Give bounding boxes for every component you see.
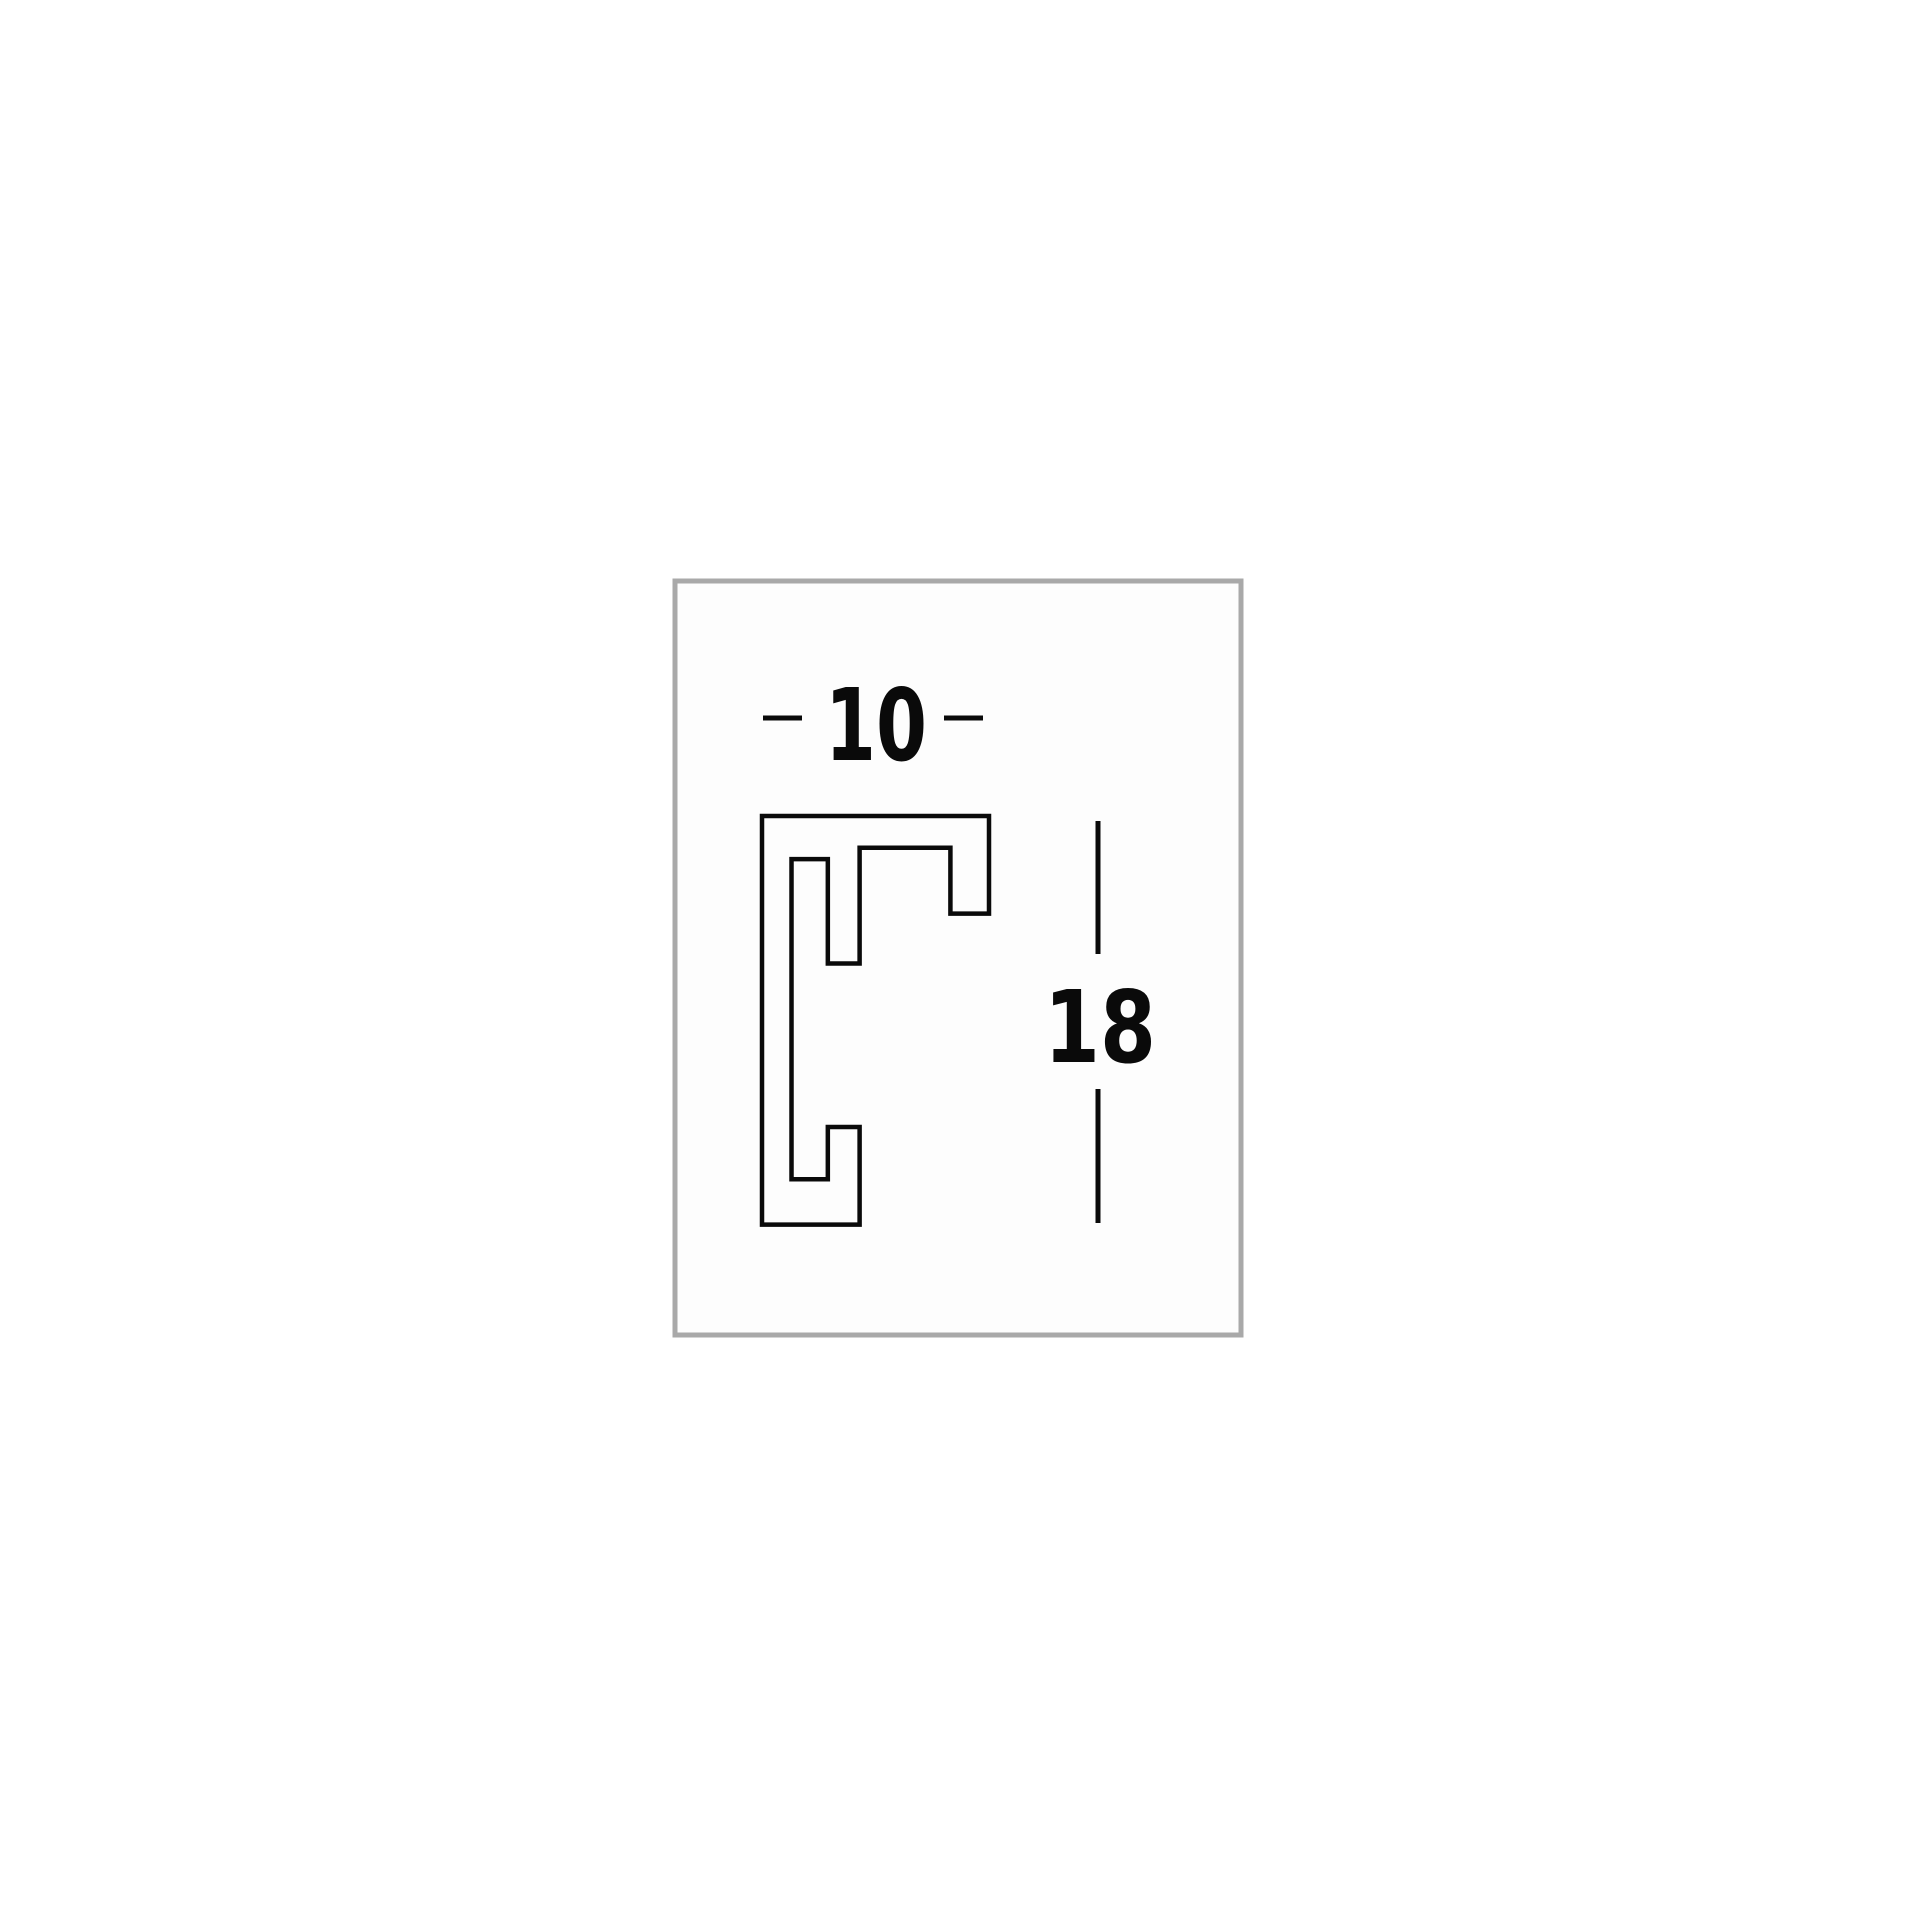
width-dim-label: 10 bbox=[825, 667, 927, 784]
page: 10 18 bbox=[0, 0, 1920, 1920]
height-dim-label: 18 bbox=[1044, 969, 1156, 1086]
moulding-profile-diagram: 10 18 bbox=[0, 0, 1920, 1920]
